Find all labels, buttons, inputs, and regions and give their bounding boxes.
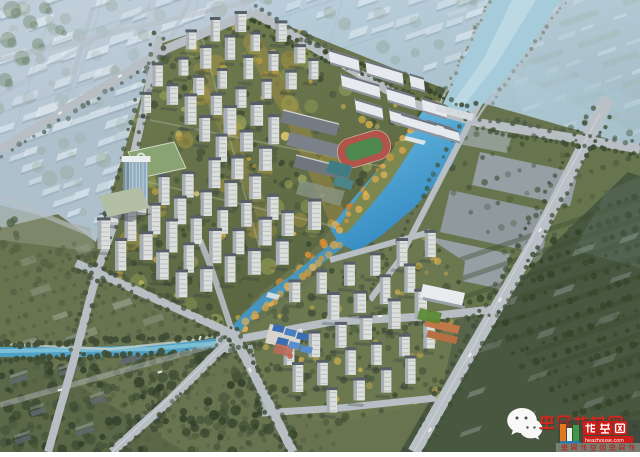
svg-text:heazhouse.com: heazhouse.com <box>585 438 624 444</box>
